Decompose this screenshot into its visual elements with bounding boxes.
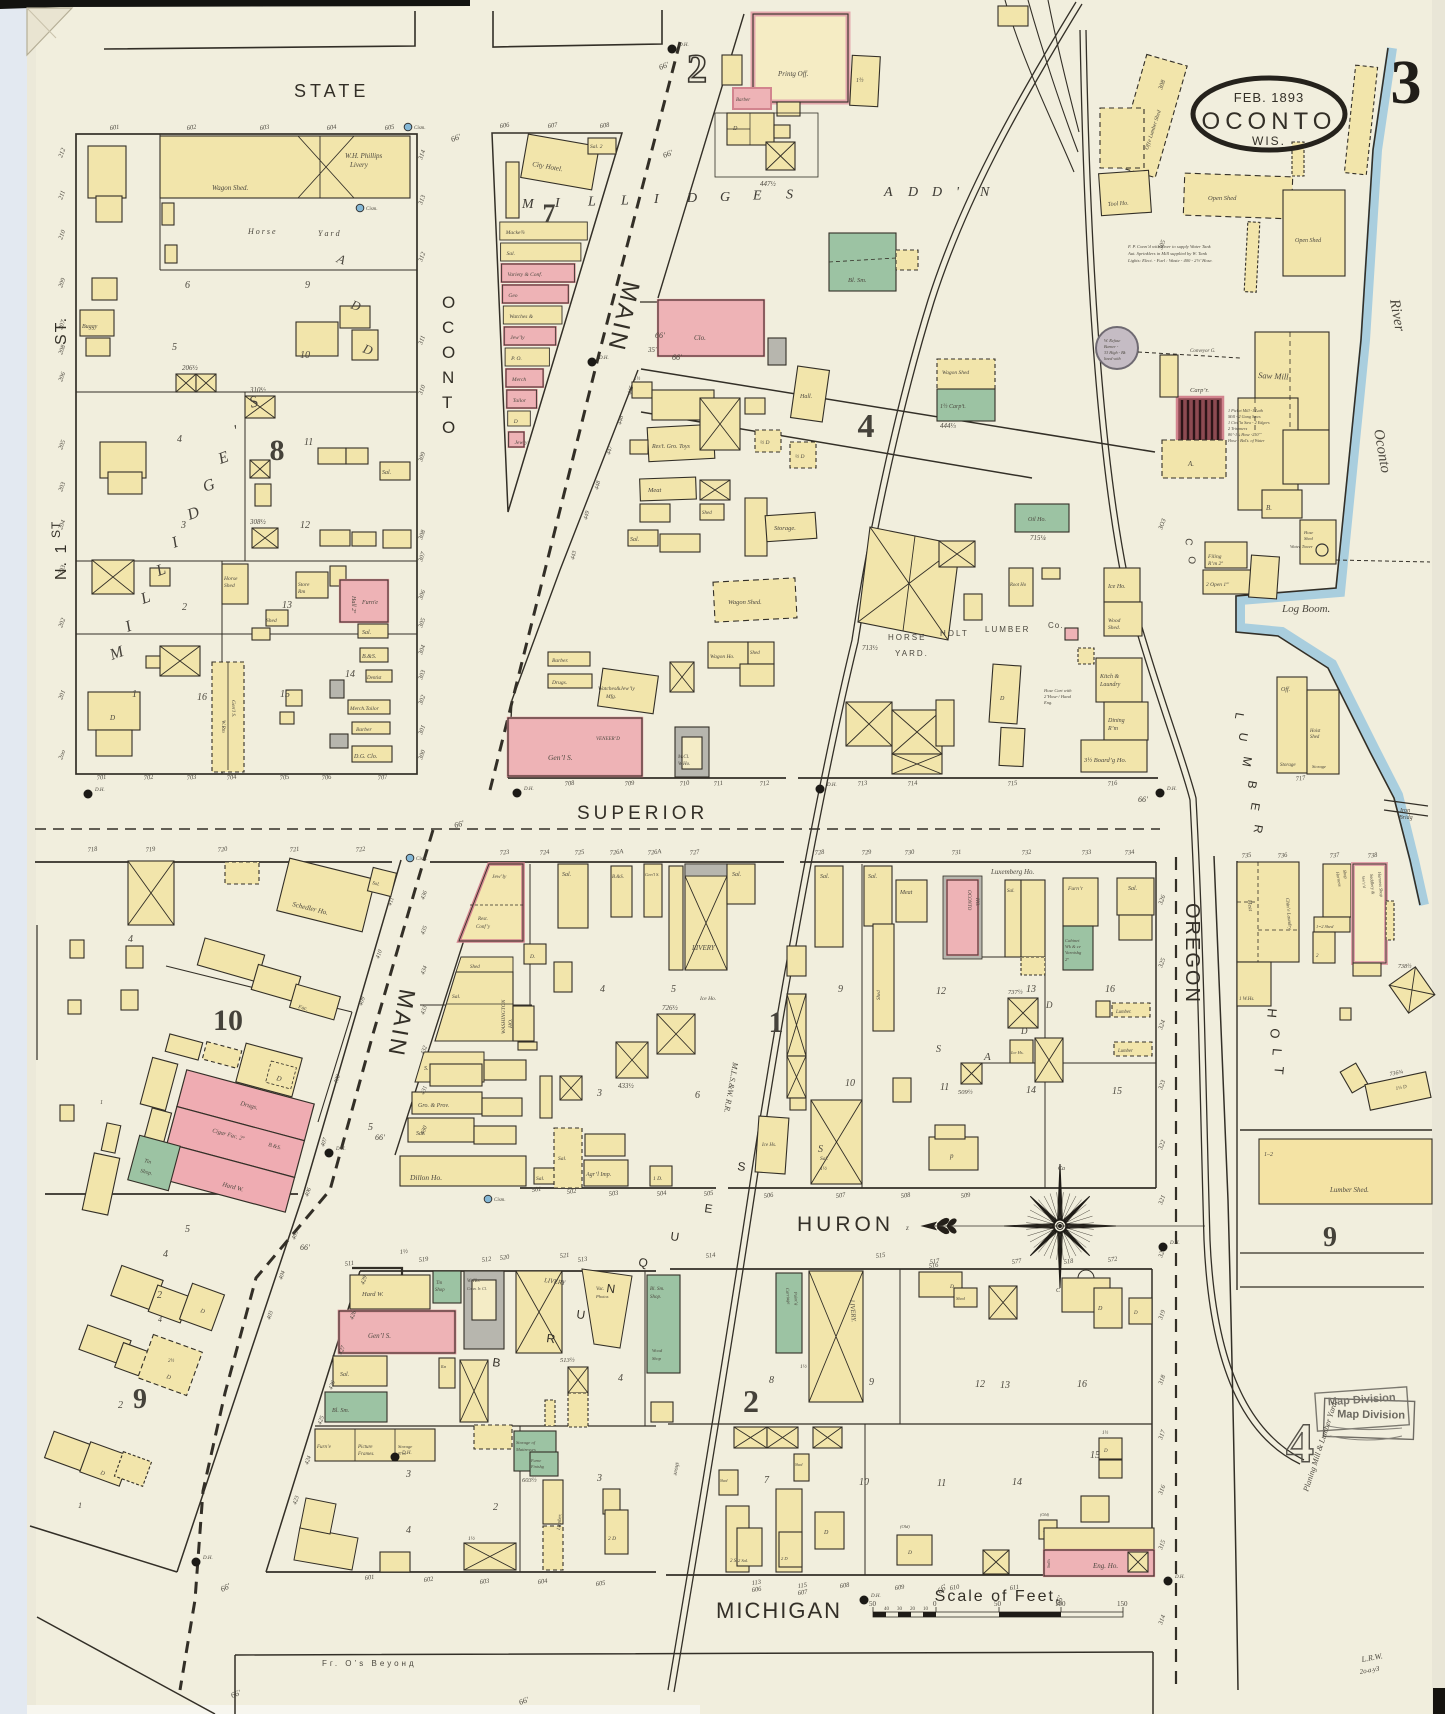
svg-text:(Old): (Old) [1040, 1512, 1050, 1517]
svg-text:2: 2 [687, 46, 707, 91]
svg-text:728: 728 [814, 849, 825, 857]
svg-text:Co.: Co. [1048, 621, 1063, 630]
svg-text:718: 718 [87, 846, 98, 854]
svg-text:Eng. Ho.: Eng. Ho. [1092, 1562, 1118, 1570]
svg-text:2’Hose-/ Hand: 2’Hose-/ Hand [1044, 694, 1072, 699]
svg-text:Kitch &: Kitch & [1099, 674, 1119, 680]
svg-text:9: 9 [869, 1377, 874, 1388]
svg-text:1: 1 [769, 1006, 784, 1039]
svg-text:66': 66' [300, 1243, 310, 1252]
svg-text:2: 2 [157, 1290, 162, 1301]
svg-text:Barber: Barber [736, 98, 750, 103]
svg-text:р: р [949, 1152, 954, 1160]
svg-text:1=2 Shed: 1=2 Shed [1316, 924, 1334, 929]
svg-text:Wood: Wood [652, 1348, 663, 1353]
svg-text:Fг. O’ѕ Bеуонд: Fг. O’ѕ Bеуонд [322, 1659, 417, 1668]
svg-text:Livery: Livery [349, 161, 369, 169]
svg-text:Merch.Tailor: Merch.Tailor [349, 706, 380, 712]
svg-text:Cіѕт.: Cіѕт. [414, 126, 426, 131]
svg-text:9: 9 [133, 1384, 147, 1415]
svg-text:Shed: Shed [750, 651, 760, 656]
svg-text:Buggy: Buggy [82, 324, 98, 330]
svg-text:C: C [442, 318, 454, 337]
svg-text:C: C [1182, 538, 1194, 546]
svg-text:2 Trimmers: 2 Trimmers [1228, 426, 1248, 431]
svg-text:D: D [686, 191, 697, 206]
svg-text:HORSE: HORSE [888, 633, 926, 642]
svg-text:513: 513 [577, 1256, 588, 1264]
svg-text:1 D.: 1 D. [653, 1176, 662, 1182]
svg-text:Ice Ho.: Ice Ho. [1107, 584, 1126, 590]
svg-text:WIS.: WIS. [1252, 134, 1286, 148]
svg-text:722: 722 [355, 846, 366, 854]
svg-text:2 Open 1º′: 2 Open 1º′ [1206, 582, 1230, 588]
svg-text:608: 608 [839, 1582, 850, 1590]
svg-text:Watches &: Watches & [509, 314, 534, 320]
svg-text:734: 734 [1124, 849, 1135, 857]
svg-text:1: 1 [78, 1501, 82, 1510]
svg-text:606: 606 [751, 1586, 762, 1594]
svg-text:Iron: Iron [1399, 808, 1410, 814]
svg-text:B.&S.: B.&S. [362, 654, 376, 660]
svg-text:602: 602 [186, 124, 197, 132]
svg-text:Wagon Shed.: Wagon Shed. [728, 599, 762, 606]
svg-text:Jew’ly: Jew’ly [510, 335, 525, 341]
svg-text:Map Division: Map Division [1337, 1408, 1405, 1421]
svg-text:706: 706 [321, 774, 332, 782]
svg-text:lined with: lined with [1104, 356, 1121, 361]
svg-text:730: 730 [904, 849, 915, 857]
svg-text:Res’t. Gro. Toys: Res’t. Gro. Toys [651, 444, 691, 450]
svg-text:D: D [949, 1284, 954, 1290]
svg-text:D: D [1103, 1449, 1108, 1454]
svg-text:511: 511 [344, 1260, 354, 1268]
svg-text:1 Circ’lа Saw - 2 Edgers: 1 Circ’lа Saw - 2 Edgers [1228, 420, 1270, 425]
svg-text:2: 2 [118, 1400, 123, 1411]
svg-text:3: 3 [596, 1088, 602, 1099]
svg-text:4: 4 [406, 1525, 411, 1536]
svg-text:Mill - 2 Gang Saws: Mill - 2 Gang Saws [1227, 414, 1261, 419]
svg-text:14: 14 [345, 669, 355, 680]
svg-text:Meat: Meat [1246, 899, 1253, 912]
svg-text:Furn’r: Furn’r [1067, 886, 1084, 892]
svg-text:STATE: STATE [294, 81, 369, 101]
svg-text:MICHIGAN: MICHIGAN [716, 1598, 842, 1623]
svg-text:M.Cl.: M.Cl. [677, 755, 689, 760]
svg-text:0: 0 [933, 1600, 937, 1608]
svg-text:T: T [1271, 1066, 1287, 1075]
svg-text:505: 505 [703, 1190, 714, 1198]
svg-text:4: 4 [177, 434, 182, 445]
svg-text:712: 712 [759, 780, 770, 788]
svg-text:604: 604 [326, 124, 337, 132]
svg-text:14: 14 [1026, 1085, 1036, 1096]
svg-text:504: 504 [656, 1190, 667, 1198]
svg-text:R’m: R’m [1107, 726, 1119, 732]
svg-text:D.H.: D.H. [1169, 1241, 1180, 1246]
svg-text:10: 10 [213, 1004, 243, 1037]
svg-text:Jew’y: Jew’y [515, 440, 528, 446]
svg-text:Dining: Dining [1107, 718, 1125, 724]
svg-text:703: 703 [186, 774, 197, 782]
svg-text:14: 14 [1012, 1477, 1022, 1488]
svg-text:13: 13 [1000, 1380, 1010, 1391]
svg-text:605: 605 [384, 124, 395, 132]
svg-text:3½ Board’g Ho.: 3½ Board’g Ho. [1083, 757, 1127, 764]
svg-text:Furn'e: Furn'e [361, 600, 378, 606]
svg-text:5: 5 [368, 1122, 373, 1133]
svg-text:Clo.: Clo. [694, 334, 706, 342]
svg-text:9: 9 [305, 280, 310, 291]
svg-text:16: 16 [1077, 1379, 1087, 1390]
svg-text:L: L [587, 195, 596, 210]
svg-text:Ice Hѕ.: Ice Hѕ. [1010, 1050, 1024, 1055]
svg-text:Lumber.: Lumber. [1115, 1010, 1132, 1015]
svg-text:4: 4 [600, 984, 605, 995]
svg-text:Watches&Jew’ly: Watches&Jew’ly [598, 686, 635, 692]
svg-text:L: L [1269, 1048, 1285, 1057]
svg-text:5: 5 [185, 1224, 190, 1235]
svg-text:O: O [442, 293, 455, 312]
svg-text:D: D [732, 126, 738, 132]
svg-text:1½: 1½ [634, 377, 641, 382]
svg-text:737: 737 [1329, 852, 1340, 860]
svg-text:D.H.: D.H. [523, 787, 534, 792]
svg-text:2º: 2º [1065, 957, 1069, 962]
svg-text:Hose - Bal’s. of Water: Hose - Bal’s. of Water [1227, 438, 1265, 443]
svg-text:Shop: Shop [435, 1288, 445, 1293]
svg-text:13: 13 [1026, 984, 1036, 995]
svg-text:444⅓: 444⅓ [940, 422, 957, 430]
svg-text:Laundry: Laundry [1099, 682, 1121, 688]
svg-text:Wagon Shed: Wagon Shed [942, 370, 969, 376]
svg-text:D: D [513, 419, 518, 425]
svg-text:605: 605 [595, 1580, 606, 1588]
svg-text:710: 710 [679, 780, 690, 788]
svg-text:YARD.: YARD. [895, 649, 929, 658]
svg-text:Shed: Shed [877, 990, 882, 1000]
svg-text:606: 606 [499, 122, 510, 130]
svg-text:Aut. Sprinklers in Mill suppli: Aut. Sprinklers in Mill supplied by W. T… [1127, 251, 1208, 256]
svg-text:Sal.: Sal. [507, 251, 515, 257]
svg-text:Gen'l S.: Gen'l S. [230, 700, 236, 717]
svg-text:Shop: Shop [652, 1356, 662, 1361]
svg-text:Cіѕт.: Cіѕт. [416, 857, 428, 862]
svg-text:Shed: Shed [1310, 735, 1320, 740]
svg-text:Lumber Shed.: Lumber Shed. [1329, 1186, 1369, 1194]
svg-text:Sal.: Sal. [340, 1372, 349, 1378]
svg-text:609: 609 [894, 1584, 905, 1592]
svg-text:507: 507 [835, 1192, 846, 1200]
svg-text:Tin: Tin [436, 1281, 443, 1286]
svg-text:Sal.: Sal. [362, 630, 371, 636]
svg-text:1½: 1½ [856, 77, 864, 84]
svg-text:H: H [1264, 1008, 1280, 1019]
svg-text:Sal.: Sal. [382, 470, 391, 476]
svg-text:12: 12 [936, 986, 946, 997]
svg-text:S: S [936, 1044, 941, 1055]
svg-text:½ D: ½ D [760, 439, 770, 446]
svg-text:Agr’l Imp.: Agr’l Imp. [585, 1172, 611, 1178]
svg-text:Sal.: Sal. [868, 874, 877, 880]
svg-text:S: S [786, 187, 793, 202]
svg-text:704: 704 [226, 774, 237, 782]
svg-text:D: D [999, 696, 1005, 702]
svg-text:Open Shed: Open Shed [1295, 238, 1322, 244]
svg-text:Carp’r.: Carp’r. [1190, 387, 1209, 394]
svg-text:Printg Off.: Printg Off. [777, 70, 809, 78]
svg-text:Open Shed: Open Shed [1208, 195, 1237, 202]
svg-text:Rest.: Rest. [477, 917, 488, 922]
svg-text:Wood: Wood [1108, 618, 1121, 624]
svg-text:LIVERY: LIVERY [691, 944, 716, 952]
svg-text:D.H.: D.H. [870, 1594, 881, 1599]
svg-text:Furnе: Furnе [530, 1458, 541, 1463]
svg-text:4: 4 [128, 934, 133, 945]
svg-text:30: 30 [897, 1607, 903, 1612]
svg-text:D.H.: D.H. [1174, 1575, 1185, 1580]
svg-text:16: 16 [197, 692, 207, 703]
svg-text:D: D [109, 714, 115, 722]
svg-text:66': 66' [375, 1133, 385, 1142]
svg-text:12: 12 [975, 1379, 985, 1390]
svg-text:B.: B. [1266, 504, 1272, 512]
svg-text:Gen’l S.: Gen’l S. [548, 753, 573, 762]
svg-text:713: 713 [857, 780, 868, 788]
svg-text:7: 7 [543, 199, 556, 228]
svg-text:Variety & Conf.: Variety & Conf. [508, 271, 543, 278]
svg-text:Horse: Horse [223, 576, 238, 582]
svg-text:Wagon Ho.: Wagon Ho. [710, 654, 735, 660]
svg-text:607: 607 [797, 1589, 808, 1597]
svg-text:Wagon Shed.: Wagon Shed. [212, 184, 249, 192]
svg-text:150: 150 [1117, 1600, 1128, 1608]
svg-text:715¼: 715¼ [1030, 534, 1047, 542]
svg-text:735: 735 [1241, 852, 1252, 860]
svg-text:513½: 513½ [560, 1357, 575, 1364]
svg-text:Sal.: Sal. [820, 874, 829, 880]
svg-text:HOLT: HOLT [940, 629, 969, 638]
svg-text:603: 603 [259, 124, 270, 132]
svg-text:519: 519 [418, 1256, 429, 1264]
svg-text:Water Tower: Water Tower [1290, 544, 1313, 549]
svg-text:Sal.: Sal. [1007, 889, 1015, 894]
svg-text:Shed: Shed [720, 1479, 727, 1483]
svg-text:447½: 447½ [760, 180, 777, 188]
svg-text:Finishg: Finishg [530, 1464, 544, 1469]
svg-text:50: 50 [994, 1600, 1002, 1608]
svg-text:2: 2 [182, 602, 187, 613]
svg-text:Shed.: Shed. [1108, 625, 1120, 631]
svg-text:D.H.: D.H. [401, 1451, 412, 1456]
svg-text:2 D: 2 D [781, 1556, 788, 1561]
svg-text:13: 13 [282, 600, 292, 611]
svg-text:601: 601 [109, 124, 120, 132]
svg-text:Shed: Shed [1304, 536, 1313, 541]
svg-text:A: A [883, 185, 893, 200]
svg-text:z: z [905, 1224, 909, 1232]
svg-text:708: 708 [564, 780, 575, 788]
svg-text:1½: 1½ [468, 1535, 475, 1542]
svg-text:VENEER’D: VENEER’D [596, 737, 620, 742]
svg-text:W.H. Phillips: W.H. Phillips [345, 152, 383, 160]
svg-text:LUMBER: LUMBER [985, 625, 1030, 634]
svg-text:Dillon Ho.: Dillon Ho. [409, 1173, 442, 1182]
svg-text:Hall 2º: Hall 2º [350, 595, 356, 613]
svg-text:9: 9 [838, 984, 843, 995]
svg-text:Burner -: Burner - [1104, 344, 1119, 349]
svg-text:8: 8 [769, 1375, 774, 1386]
svg-text:Root Ho: Root Ho [1009, 583, 1027, 588]
svg-text:Furn’e: Furn’e [316, 1445, 332, 1450]
svg-text:10: 10 [300, 350, 310, 361]
svg-text:O: O [1267, 1028, 1283, 1039]
svg-text:Storage: Storage [398, 1444, 412, 1449]
svg-text:Dentist: Dentist [366, 676, 382, 681]
svg-text:6: 6 [185, 280, 190, 291]
svg-text:Wk & cе: Wk & cе [1065, 944, 1081, 949]
svg-text:Gro. & Prov.: Gro. & Prov. [418, 1103, 449, 1109]
svg-text:3: 3 [1391, 49, 1422, 117]
svg-text:33 High - Bk: 33 High - Bk [1104, 350, 1126, 355]
svg-text:Sal.: Sal. [558, 1156, 566, 1162]
svg-text:717: 717 [1295, 775, 1306, 783]
svg-text:80’-1¾ Hose -250’″: 80’-1¾ Hose -250’″ [1228, 432, 1262, 437]
svg-text:604: 604 [537, 1578, 548, 1586]
svg-text:725: 725 [574, 849, 585, 857]
svg-text:3: 3 [180, 520, 186, 531]
svg-text:5: 5 [172, 342, 177, 353]
svg-text:726½: 726½ [662, 1004, 679, 1012]
svg-text:738½: 738½ [1398, 963, 1412, 970]
svg-text:508: 508 [900, 1192, 911, 1200]
svg-text:D.H.: D.H. [598, 356, 609, 361]
svg-text:WASHINGTON: WASHINGTON [501, 999, 507, 1034]
svg-text:W.Rm: W.Rm [220, 720, 226, 733]
svg-text:3: 3 [596, 1473, 602, 1484]
svg-text:Bl. Sm.: Bl. Sm. [848, 277, 867, 284]
svg-text:Luxemberg Ho.: Luxemberg Ho. [990, 868, 1035, 876]
svg-text:L: L [620, 193, 629, 208]
svg-text:Gen’l S.: Gen’l S. [368, 1332, 391, 1340]
svg-text:11: 11 [937, 1478, 946, 1489]
svg-text:D.G. Clo.: D.G. Clo. [353, 754, 377, 760]
svg-text:723: 723 [499, 849, 510, 857]
svg-text:Gen'l S.: Gen'l S. [645, 872, 660, 877]
svg-text:11: 11 [304, 437, 313, 448]
svg-text:603½: 603½ [522, 1477, 537, 1484]
svg-text:1½: 1½ [800, 1363, 807, 1370]
svg-text:(Old): (Old) [900, 1524, 910, 1529]
svg-text:Rм: Rм [440, 1364, 446, 1369]
svg-text:N: N [442, 368, 454, 387]
svg-text:577: 577 [1011, 1258, 1022, 1266]
svg-text:40: 40 [884, 1607, 890, 1612]
svg-text:8: 8 [270, 434, 285, 467]
svg-text:Conf’y: Conf’y [476, 925, 491, 930]
svg-text:N: N [979, 185, 990, 200]
svg-text:Stalls: Stalls [1046, 1559, 1051, 1568]
svg-text:Meat: Meat [899, 890, 913, 896]
svg-text:Geo: Geo [508, 293, 517, 299]
svg-text:Bl. Sm.: Bl. Sm. [650, 1287, 664, 1292]
svg-text:Sal.: Sal. [452, 994, 460, 1000]
svg-text:HURON: HURON [797, 1213, 894, 1236]
svg-text:1: 1 [132, 689, 137, 700]
svg-text:Sal.: Sal. [562, 872, 571, 878]
svg-text:B.&S.: B.&S. [612, 875, 624, 880]
svg-text:2: 2 [493, 1502, 498, 1513]
svg-text:Bridg: Bridg [1399, 815, 1413, 821]
svg-text:Sal.: Sal. [1128, 886, 1137, 892]
svg-text:433½: 433½ [618, 1082, 635, 1090]
svg-text:Ice Hѕ.: Ice Hѕ. [761, 1143, 776, 1148]
svg-text:702: 702 [143, 774, 154, 782]
svg-text:HO.: HO. [974, 897, 979, 906]
svg-text:Filing: Filing [1207, 554, 1222, 560]
svg-text:727: 727 [689, 849, 700, 857]
svg-text:Conveyor G.: Conveyor G. [1190, 349, 1216, 354]
svg-text:Macke¾: Macke¾ [505, 230, 525, 236]
svg-text:Log Boom.: Log Boom. [1281, 603, 1330, 615]
svg-text:Storage of: Storage of [516, 1440, 536, 1445]
svg-text:Ice Ho.: Ice Ho. [699, 996, 716, 1002]
svg-text:1½: 1½ [1102, 1431, 1109, 1436]
svg-text:Storage.: Storage. [774, 525, 796, 532]
svg-text:1½: 1½ [399, 1248, 408, 1256]
svg-text:Off.: Off. [1281, 686, 1290, 693]
svg-text:602: 602 [423, 1576, 434, 1584]
svg-text:1 W.Hѕ.: 1 W.Hѕ. [1239, 997, 1255, 1002]
svg-text:521: 521 [559, 1252, 570, 1260]
svg-text:35': 35' [647, 346, 657, 354]
svg-text:732: 732 [1021, 849, 1032, 857]
svg-text:Eng.: Eng. [1043, 700, 1052, 705]
svg-text:P. O.: P. O. [510, 356, 522, 362]
svg-text:Са: Са [1058, 1166, 1065, 1172]
svg-text:Barber.: Barber. [552, 658, 568, 664]
svg-text:Meat: Meat [647, 487, 662, 494]
svg-text:Sal.: Sal. [820, 1156, 828, 1162]
svg-text:308½: 308½ [249, 518, 267, 526]
svg-text:O: O [442, 418, 455, 437]
svg-text:709: 709 [624, 780, 635, 788]
svg-text:Hose: Hose [1303, 530, 1313, 535]
svg-text:D.H.: D.H. [678, 43, 689, 48]
svg-text:D.H.: D.H. [335, 1147, 346, 1152]
svg-text:Jew’ly: Jew’ly [492, 874, 507, 880]
svg-text:A: A [983, 1051, 991, 1063]
svg-text:Picture: Picture [357, 1445, 373, 1450]
svg-text:729: 729 [861, 849, 872, 857]
svg-text:572: 572 [1107, 1256, 1118, 1264]
svg-text:Mfg.: Mfg. [605, 693, 616, 700]
svg-text:20: 20 [910, 1607, 916, 1612]
svg-text:705: 705 [279, 774, 290, 782]
svg-text:50: 50 [869, 1600, 877, 1608]
svg-text:Shed: Shed [470, 965, 480, 970]
svg-text:1 Picket Mill -1 Lath: 1 Picket Mill -1 Lath [1228, 408, 1263, 413]
svg-text:Sal. 2: Sal. 2 [590, 144, 603, 150]
svg-text:66': 66' [1138, 795, 1148, 804]
svg-text:6: 6 [695, 1090, 700, 1101]
svg-text:D: D [907, 1550, 912, 1556]
svg-text:707: 707 [377, 774, 388, 782]
svg-text:520: 520 [499, 1254, 510, 1262]
svg-text:M: M [521, 197, 535, 212]
svg-text:4: 4 [163, 1249, 168, 1260]
svg-text:S.: S. [424, 1066, 429, 1072]
